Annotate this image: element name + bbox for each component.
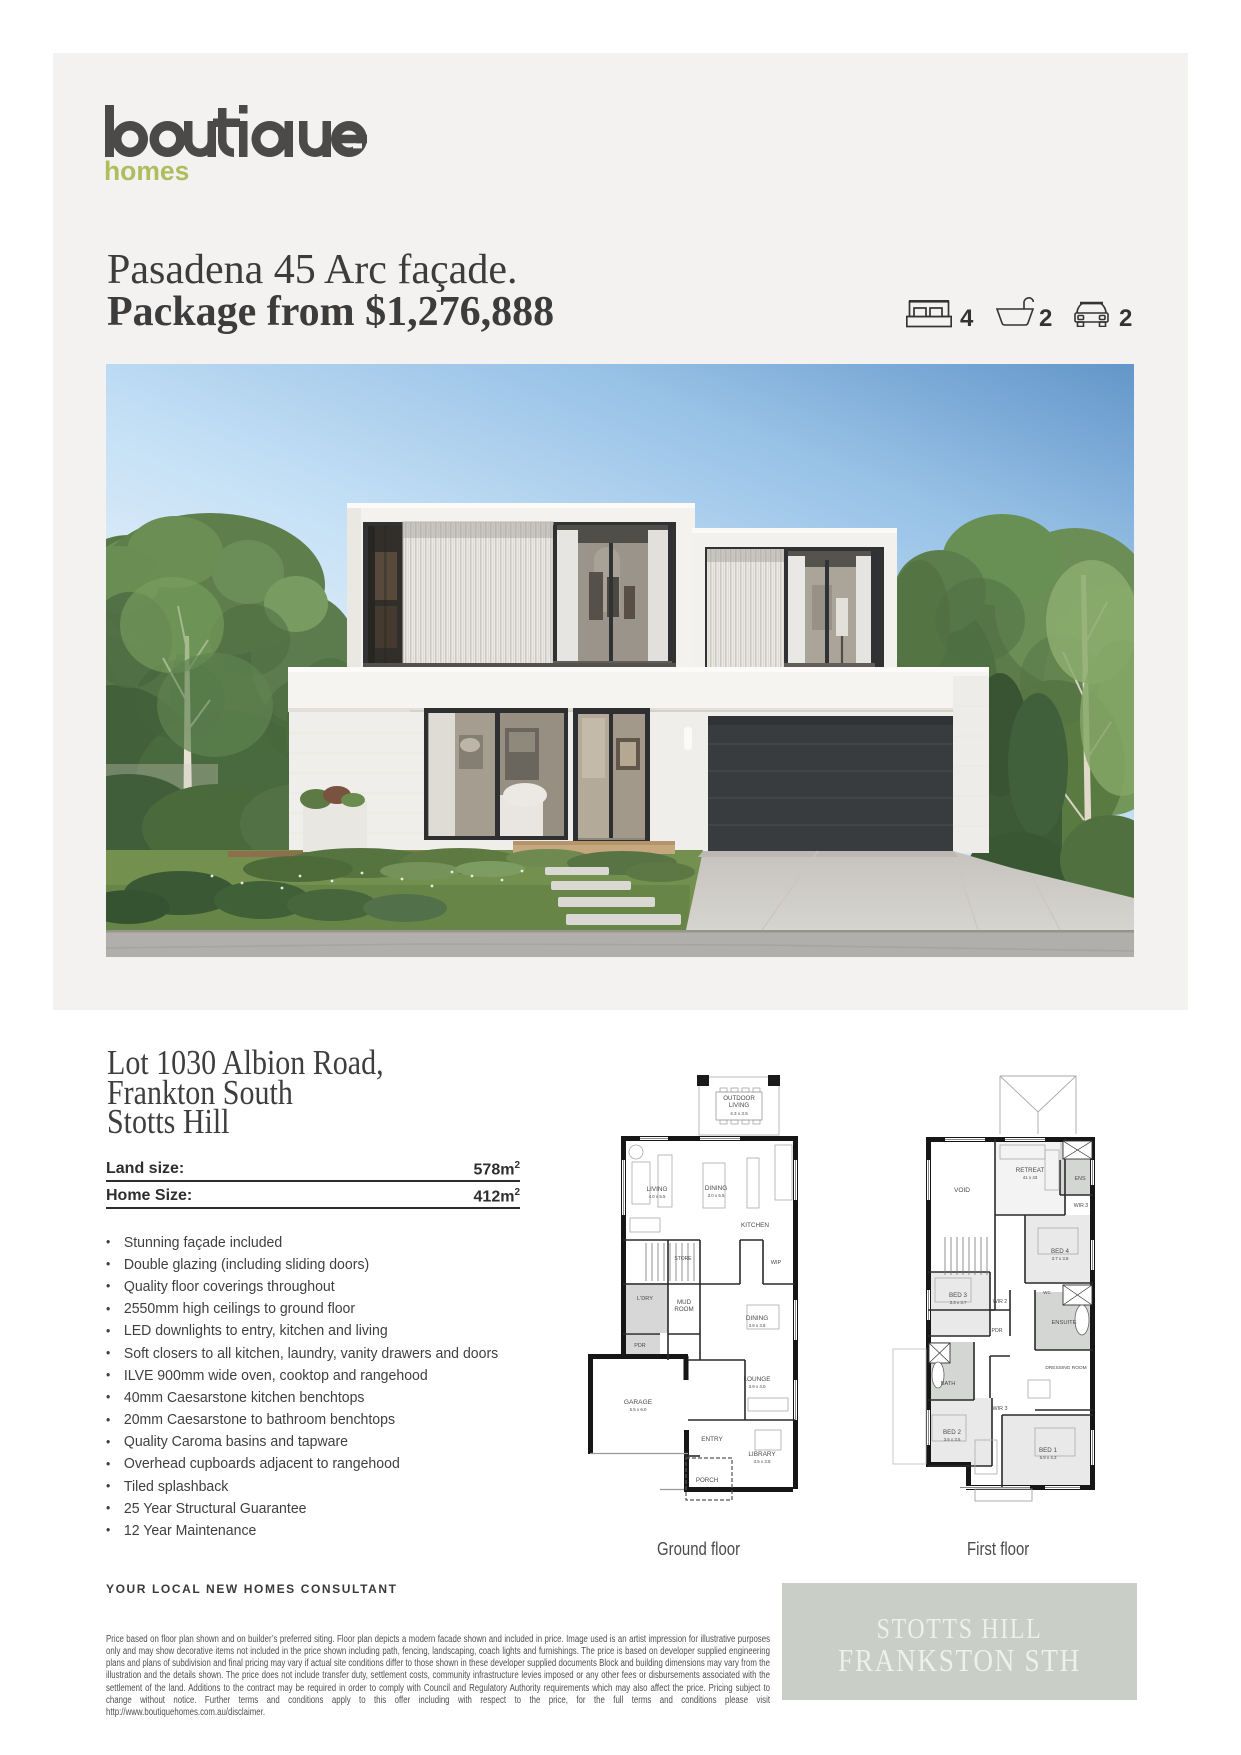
- svg-text:DRESSING ROOM: DRESSING ROOM: [1045, 1365, 1086, 1371]
- svg-text:PDR: PDR: [634, 1343, 645, 1349]
- svg-text:GARAGE: GARAGE: [624, 1399, 653, 1406]
- svg-text:VOID: VOID: [954, 1187, 970, 1194]
- svg-text:3.5 x 3.8: 3.5 x 3.8: [754, 1459, 771, 1464]
- svg-text:BED 4: BED 4: [1051, 1248, 1069, 1255]
- svg-text:homes: homes: [105, 156, 189, 186]
- svg-text:3.9 x 4.0: 3.9 x 4.0: [749, 1384, 766, 1389]
- svg-text:WIP: WIP: [771, 1260, 782, 1266]
- svg-text:DINING: DINING: [705, 1185, 727, 1192]
- svg-text:BED 3: BED 3: [949, 1292, 967, 1299]
- svg-text:PORCH: PORCH: [696, 1477, 718, 1484]
- svg-text:BED 2: BED 2: [943, 1429, 961, 1436]
- svg-text:L'DRY: L'DRY: [637, 1296, 653, 1302]
- svg-text:OUTDOOR: OUTDOOR: [723, 1095, 755, 1102]
- svg-text:5.9 x 4.3: 5.9 x 4.3: [1040, 1455, 1057, 1460]
- svg-text:4.3 x 3.5: 4.3 x 3.5: [730, 1111, 748, 1116]
- svg-text:PDR: PDR: [992, 1328, 1003, 1334]
- svg-text:RETREAT: RETREAT: [1016, 1167, 1045, 1174]
- svg-text:LOUNGE: LOUNGE: [744, 1376, 771, 1383]
- svg-text:5.5 x 6.0: 5.5 x 6.0: [630, 1407, 647, 1412]
- svg-text:STORE: STORE: [674, 1256, 692, 1262]
- svg-text:41 x 43: 41 x 43: [1023, 1175, 1038, 1180]
- svg-text:LIVING: LIVING: [647, 1186, 668, 1193]
- svg-text:3.7 x 3.8: 3.7 x 3.8: [1052, 1256, 1069, 1261]
- svg-text:LIVING: LIVING: [729, 1102, 749, 1109]
- svg-text:4.0 x 5.5: 4.0 x 5.5: [649, 1194, 666, 1199]
- svg-text:ENSUITE: ENSUITE: [1051, 1320, 1076, 1326]
- svg-text:DINING: DINING: [746, 1315, 768, 1322]
- svg-text:KITCHEN: KITCHEN: [741, 1222, 769, 1229]
- svg-text:3.9 x 3.8: 3.9 x 3.8: [749, 1323, 766, 1328]
- svg-text:3.5 x 3.5: 3.5 x 3.5: [944, 1437, 961, 1442]
- svg-text:MUD: MUD: [677, 1299, 692, 1306]
- svg-text:WIR 3: WIR 3: [993, 1406, 1008, 1412]
- svg-text:BATH: BATH: [941, 1381, 956, 1387]
- svg-text:ENTRY: ENTRY: [701, 1436, 723, 1443]
- svg-text:ENS: ENS: [1074, 1176, 1085, 1182]
- svg-text:3.0 x 5.5: 3.0 x 5.5: [708, 1193, 725, 1198]
- svg-text:3.3 x 3.7: 3.3 x 3.7: [950, 1300, 967, 1305]
- svg-text:ROOM: ROOM: [674, 1306, 693, 1313]
- svg-text:WC: WC: [1043, 1290, 1051, 1295]
- svg-text:WIR 3: WIR 3: [1074, 1203, 1089, 1209]
- svg-text:WIR 2: WIR 2: [993, 1299, 1008, 1305]
- svg-text:BED 1: BED 1: [1039, 1447, 1057, 1454]
- svg-text:LIBRARY: LIBRARY: [748, 1451, 776, 1458]
